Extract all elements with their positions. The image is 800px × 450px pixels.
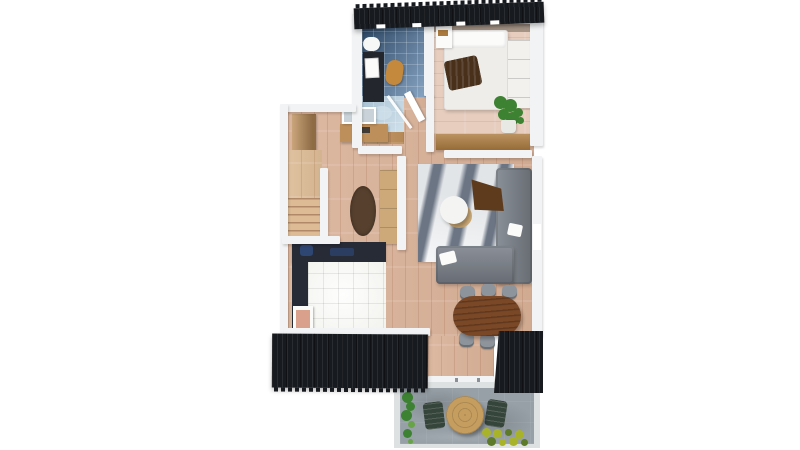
kitchen-tile-floor [308, 262, 386, 334]
wall-hall-north [282, 104, 356, 112]
roof-bracket-2 [412, 23, 421, 27]
tall-cabinet [380, 170, 397, 244]
patio-chair-left [422, 401, 445, 430]
patio-round-table [446, 396, 484, 434]
east-window-break [533, 224, 541, 250]
bedroom-plant [494, 96, 507, 109]
dresser [508, 40, 530, 108]
patio-tall-plant [402, 392, 413, 403]
staircase [288, 198, 322, 240]
wall-bathroom-west [352, 14, 362, 148]
dining-table [453, 296, 521, 336]
wall-corridor-east [426, 94, 434, 152]
counter-kettle [300, 245, 313, 256]
floor-plan-render [0, 0, 800, 450]
window-ledge-deck [436, 134, 530, 150]
toilet [363, 37, 380, 51]
picture-art [296, 310, 310, 328]
wall-hall-kitchen-divider [282, 236, 340, 244]
roof-bracket-3 [456, 21, 465, 25]
wall-bedroom-east [530, 14, 543, 146]
vanity-art-print [364, 58, 379, 79]
hall-runner-rug [350, 186, 376, 236]
wall-living-north [444, 150, 532, 158]
right-balcony-roof [494, 331, 543, 393]
wall-hall-living-divider [397, 156, 406, 250]
bed-pillows [446, 32, 506, 48]
wall-bathroom-south [358, 146, 402, 154]
dining-chair-bottom-2 [480, 334, 495, 349]
left-balcony-roof [272, 333, 428, 388]
wardrobe [292, 114, 316, 152]
wall-west-outer [280, 104, 288, 334]
roof-bracket-4 [490, 20, 499, 24]
counter-tray [330, 248, 354, 256]
stair-railing [320, 168, 328, 240]
patio-chair-right [484, 399, 508, 429]
coffee-table [440, 196, 468, 224]
wall-bath-bed-divider [424, 22, 434, 96]
roof-bracket-1 [376, 24, 385, 28]
shelf-item [438, 30, 448, 36]
patio-flower-bed [482, 428, 491, 437]
stair-landing [288, 150, 322, 198]
plant-pot [501, 120, 516, 133]
sofa-cushion-right [507, 223, 523, 238]
